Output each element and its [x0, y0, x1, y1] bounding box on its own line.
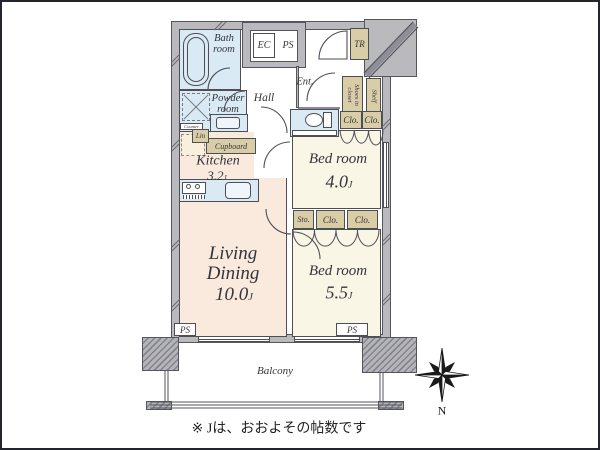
compass-sw-point [430, 375, 442, 387]
shelf-label: Shelf [370, 90, 377, 103]
closet-entry-2: Clo. [362, 111, 382, 129]
unit-suffix: J [348, 180, 352, 191]
bathtub-inner [187, 37, 205, 82]
compass-e-light [442, 372, 469, 376]
floor-note: ※ Jは、おおよその帖数です [192, 423, 367, 438]
compass-w-light [415, 375, 442, 379]
bedroom-upper [292, 130, 381, 209]
pillar-bottom-right [362, 337, 417, 373]
compass-se-point [442, 375, 454, 387]
bedroom-upper-size: 4.0J [326, 173, 353, 192]
sto-label: Sto. [297, 215, 309, 224]
bath-room-label: Bath room [204, 33, 244, 55]
ps-label: PS [347, 325, 357, 335]
cupboard: Cupboard [206, 138, 256, 154]
ps-bottom-left: PS [174, 323, 196, 336]
kitchen-name: Kitchen [196, 155, 240, 170]
toilet-tank [323, 112, 332, 128]
compass-s-light [442, 375, 446, 402]
balcony-rail-end-left [146, 401, 172, 410]
stove-grill [183, 195, 205, 199]
toilet-bowl [305, 113, 323, 127]
unit-suffix: J [248, 292, 253, 303]
cupboard-label: Cupboard [215, 142, 247, 151]
closet-entry-1: Clo. [340, 111, 362, 129]
living-window [198, 336, 270, 342]
stove-burner-1 [186, 184, 191, 189]
shoes-in-closet-label: Shoes in closet [345, 78, 359, 112]
floor-plan: EC PS Bath room Powder room Counter Lin … [0, 0, 600, 450]
compass-n-light [439, 348, 443, 375]
compass-ne-point [442, 363, 454, 375]
closet-mid-2: Clo. [347, 210, 378, 229]
clo-label: Clo. [364, 115, 379, 125]
kitchen-sink [225, 182, 251, 199]
north-label: N [438, 405, 447, 418]
storage-box: Sto. [293, 210, 314, 229]
compass-nw-point [430, 363, 442, 375]
ec-label: EC [258, 40, 271, 51]
wash-basin-sink [216, 117, 240, 129]
living-name-line1: Living [209, 244, 258, 264]
bedroom-upper-name: Bed room [309, 152, 367, 168]
toilet-counter [292, 130, 337, 136]
ent-label: Ent. [296, 76, 313, 87]
bedroom-lower-window [294, 336, 360, 342]
stove-burner-2 [195, 184, 200, 189]
ps-bottom-right: PS [336, 323, 368, 336]
electrical-closet-box: EC [253, 33, 275, 58]
open-corridor-block [364, 19, 417, 77]
balcony-label: Balcony [257, 366, 293, 378]
trunk-room: TR [350, 28, 369, 60]
clo-label: Clo. [355, 215, 370, 225]
hall-label: Hall [254, 92, 274, 104]
bedroom-lower-name: Bed room [309, 264, 367, 280]
clo-label: Clo. [343, 115, 358, 125]
balcony-rail-end-right [378, 401, 404, 410]
ps-label: PS [180, 325, 190, 335]
linen-closet: Lin [192, 129, 209, 143]
compass-s-dark [439, 375, 443, 402]
compass-w-dark [415, 372, 442, 376]
lin-label: Lin [196, 132, 205, 140]
pillar-bottom-left [142, 337, 179, 371]
bedroom-upper-window [383, 142, 389, 208]
unit-suffix: J [224, 174, 227, 182]
powder-room-label: Powder room [205, 93, 251, 115]
living-size: 10.0J [215, 285, 253, 305]
living-name-line2: Dining [207, 264, 260, 284]
compass-e-dark [442, 375, 469, 379]
ps-top-label: PS [282, 41, 293, 52]
clo-label: Clo. [323, 215, 338, 225]
kitchen-size: 3.2J [207, 169, 226, 183]
compass-n-dark [442, 348, 446, 375]
compass-rose [415, 348, 469, 402]
hall-corridor [254, 132, 287, 178]
bedroom-lower-size: 5.5J [326, 284, 353, 303]
tr-label: TR [354, 39, 365, 49]
closet-mid-1: Clo. [316, 210, 345, 229]
unit-suffix: J [348, 291, 352, 302]
